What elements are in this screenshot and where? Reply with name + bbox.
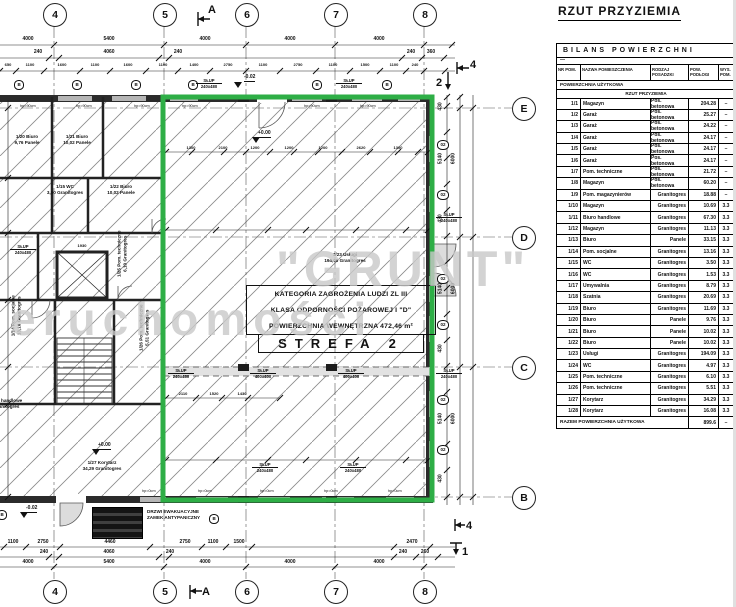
cell-room-name: Biuro <box>581 235 651 245</box>
room-label-line1: 1/26 Pom. techniczne <box>138 296 144 360</box>
total-area: 899.6 <box>689 417 719 428</box>
cell-room-number: 1/17 <box>557 281 581 291</box>
column-label: SŁUP 240x480 <box>252 462 278 474</box>
cell-height: – <box>719 178 733 188</box>
cell-area: 24.17 <box>689 133 719 143</box>
dimension-label: 5140 <box>439 144 444 174</box>
window-tag: 02 <box>437 320 449 330</box>
door-tag: B <box>209 514 219 524</box>
cell-area: 67.30 <box>689 212 719 222</box>
cell-room-name: Garaż <box>581 110 651 120</box>
room-label-line2: 5,51 Granitogres <box>144 296 150 360</box>
cell-area: 10.02 <box>689 326 719 336</box>
window-tag: 02 <box>437 445 449 455</box>
cell-room-name: Pom. techniczne <box>581 167 651 177</box>
dimension-label: 1930 <box>64 244 100 248</box>
cell-floor-type: Pos. betonowa <box>651 167 689 177</box>
cell-room-name: Biuro <box>581 304 651 314</box>
cell-area: 10.02 <box>689 338 719 348</box>
cell-height: 3.3 <box>719 258 733 268</box>
sill-height-label: hp=0cm <box>260 489 284 493</box>
dimension-label: 1100 <box>2 540 24 545</box>
grid-bubble: 6 <box>235 3 259 27</box>
dimension-label: 2750 <box>280 63 316 67</box>
cell-room-number: 1/14 <box>557 247 581 257</box>
dimension-label: 4000 <box>183 37 227 42</box>
cell-floor-type: Granitogres <box>651 292 689 302</box>
cell-area: 8.79 <box>689 281 719 291</box>
cell-area: 4.97 <box>689 360 719 370</box>
room-label: 1/25 Pom. techniczne 6,10 Granitogres <box>116 222 127 286</box>
cell-floor-type: Pos. betonowa <box>651 99 689 109</box>
cell-room-name: Garaż <box>581 144 651 154</box>
cell-area: 204.28 <box>689 99 719 109</box>
fire-note-line3: POWIERZCHNIA WEWNĘTRZNA 472,46 m² <box>247 323 435 330</box>
dimension-label: 6000 <box>452 274 457 304</box>
cell-height: 3.3 <box>719 360 733 370</box>
room-label-line2: 13,16 Granitogres <box>16 286 22 346</box>
cell-height: – <box>719 190 733 200</box>
dimension-label: 4460 <box>88 540 132 545</box>
door-tag: B <box>131 80 141 90</box>
grid-bubble: 4 <box>43 580 67 604</box>
dimension-label: 1100 <box>316 63 350 67</box>
cell-room-number: 1/5 <box>557 144 581 154</box>
cell-height: 3.3 <box>719 269 733 279</box>
cell-height: 3.3 <box>719 212 733 222</box>
column-label: SŁUP 400x400 <box>250 368 276 380</box>
column-label: SŁUP 240x480 <box>10 244 36 256</box>
dimension-label: 650 <box>0 63 16 67</box>
column-label-size: 240x480 <box>336 84 362 89</box>
evacuation-door-note-line2: ZAMEK ANTYPANICZNY <box>147 515 200 521</box>
dimension-label: 4000 <box>6 37 50 42</box>
cell-room-number: 1/26 <box>557 383 581 393</box>
col-header-height: WYS. POM. <box>719 65 733 80</box>
dimension-label: 1200 <box>276 146 302 150</box>
cell-room-number: 1/13 <box>557 235 581 245</box>
dimension-label: 2750 <box>210 63 246 67</box>
table-column-headers: NR POM. NAZWA POMIESZCZENIA RODZAJ POSAD… <box>557 65 735 81</box>
table-title: BILANS POWIERZCHNI <box>557 44 735 58</box>
column-label-size: 400x400 <box>250 374 276 379</box>
dimension-label: 1520 <box>200 392 228 396</box>
section-label: 4 <box>470 59 476 71</box>
cell-room-name: Pom. magazynierów <box>581 190 651 200</box>
cell-height: 3.3 <box>719 395 733 405</box>
cell-height: 3.3 <box>719 247 733 257</box>
column-label-size: 400x400 <box>338 374 364 379</box>
dimension-label: 1430 <box>228 392 256 396</box>
section-label: 4 <box>466 520 472 532</box>
cell-room-number: 1/7 <box>557 167 581 177</box>
dimension-label: 240 <box>28 50 48 55</box>
cell-floor-type: Granitogres <box>651 281 689 291</box>
fire-note-line1: KATEGORIA ZAGROŻENIA LUDZI ZL III <box>247 291 435 298</box>
dimension-label: 2750 <box>168 540 202 545</box>
table-row: 1/19 Biuro Granitogres 11.69 3.3 <box>557 304 735 315</box>
cell-area: 6.10 <box>689 372 719 382</box>
cell-floor-type: Granitogres <box>651 406 689 416</box>
dimension-label: 2100 <box>208 146 238 150</box>
section-label: A <box>208 4 216 16</box>
room-label-line2: 10,02 Panele <box>56 140 98 146</box>
cell-floor-type: Granitogres <box>651 269 689 279</box>
grid-bubble: 7 <box>324 3 348 27</box>
dimension-label: 240 <box>168 50 188 55</box>
column-label: SŁUP 240x480 <box>436 212 462 224</box>
dimension-label: 430 <box>439 92 444 122</box>
cell-floor-type: Granitogres <box>651 258 689 268</box>
door-mat <box>92 507 143 539</box>
grid-bubble: B <box>512 486 536 510</box>
cell-area: 24.17 <box>689 144 719 154</box>
cell-floor-type: Panele <box>651 338 689 348</box>
table-subsection-header: RZUT PRZYZIEMIA <box>557 90 735 99</box>
column-label: SŁUP 400x400 <box>338 368 364 380</box>
table-row: 1/6 Garaż Pos. betonowa 24.17 – <box>557 155 735 166</box>
grid-bubble: D <box>512 226 536 250</box>
cell-room-name: Magazyn <box>581 224 651 234</box>
cell-height: – <box>719 167 733 177</box>
room-label-line2: 67,30 Granitogres <box>0 404 30 410</box>
cell-height: – <box>719 99 733 109</box>
grid-bubble: E <box>512 97 536 121</box>
table-row: 1/11 Biuro handlowe Granitogres 67.30 3.… <box>557 212 735 223</box>
table-row: 1/2 Garaż Pos. betonowa 25.27 – <box>557 110 735 121</box>
dimension-label: 1400 <box>178 63 210 67</box>
cell-room-number: 1/2 <box>557 110 581 120</box>
cell-area: 25.27 <box>689 110 719 120</box>
column-label-size: 240x480 <box>10 250 36 255</box>
sill-height-label: hp=90cm <box>76 104 100 108</box>
total-label: RAZEM POWIERZCHNIA UŻYTKOWA <box>557 417 689 428</box>
room-label: 1/21 Biuro 10,02 Panele <box>56 134 98 145</box>
cell-room-name: WC <box>581 269 651 279</box>
column-label-size: 240x480 <box>196 84 222 89</box>
cell-height: 3.3 <box>719 315 733 325</box>
cell-height: 3.3 <box>719 281 733 291</box>
table-body: 1/1 Magazyn Pos. betonowa 204.28 – 1/2 G… <box>557 99 735 417</box>
column-label: SŁUP 240x480 <box>196 78 222 90</box>
cell-height: 3.3 <box>719 224 733 234</box>
cell-room-number: 1/11 <box>557 212 581 222</box>
dimension-label: 2110 <box>168 392 198 396</box>
table-row: 1/9 Pom. magazynierów Granitogres 18.88 … <box>557 190 735 201</box>
cell-room-number: 1/23 <box>557 349 581 359</box>
screenshot-root: "GRUNT" Nieruchomości 4567845678EDCB BBB… <box>0 0 736 607</box>
cell-floor-type: Granitogres <box>651 372 689 382</box>
dimension-label: 260 <box>416 550 434 555</box>
room-label: 1/23 Usługi 194,09 Granitogres <box>316 252 374 263</box>
cell-room-name: Korytarz <box>581 406 651 416</box>
sill-height-label: hp=90cm <box>134 104 158 108</box>
table-row: 1/21 Biuro Panele 10.02 3.3 <box>557 326 735 337</box>
dimension-label: 1100 <box>246 63 280 67</box>
fire-note-line2: KLASA ODPORNOŚCI POŻAROWEJ I "D" <box>247 307 435 314</box>
cell-room-number: 1/12 <box>557 224 581 234</box>
table-row: 1/22 Biuro Panele 10.02 3.3 <box>557 338 735 349</box>
column-label-size: 240x480 <box>340 468 366 473</box>
dimension-label: 5140 <box>439 274 444 304</box>
fire-zone-label: STREFA 2 <box>258 334 424 353</box>
cell-room-name: Biuro <box>581 326 651 336</box>
room-label: 1/11 Biuro handlowe 67,30 Granitogres <box>0 398 30 409</box>
table-row: 1/17 Umywalnia Granitogres 8.79 3.3 <box>557 281 735 292</box>
room-label-line2: 3,50 Granitogres <box>44 190 86 196</box>
table-row: 1/7 Pom. techniczne Pos. betonowa 21.72 … <box>557 167 735 178</box>
cell-height: 3.3 <box>719 201 733 211</box>
cell-room-name: Pom. socjalne <box>581 247 651 257</box>
cell-room-name: Garaż <box>581 121 651 131</box>
cell-floor-type: Pos. betonowa <box>651 133 689 143</box>
cell-room-name: Biuro <box>581 315 651 325</box>
table-row: 1/16 WC Granitogres 1.53 3.3 <box>557 269 735 280</box>
door-tag: B <box>382 80 392 90</box>
cell-floor-type: Panele <box>651 315 689 325</box>
col-header-nr: NR POM. <box>557 65 581 80</box>
table-row: 1/13 Biuro Panele 33.15 3.3 <box>557 235 735 246</box>
table-row: 1/10 Magazyn Granitogres 10.69 3.3 <box>557 201 735 212</box>
sill-height-label: hp=0cm <box>198 489 222 493</box>
cell-area: 11.13 <box>689 224 719 234</box>
table-row: 1/14 Pom. socjalne Granitogres 13.16 3.3 <box>557 247 735 258</box>
dimension-label: 1300 <box>178 146 204 150</box>
table-section-header: POWIERZCHNIA UŻYTKOWA <box>557 81 735 90</box>
dimension-label: 4000 <box>268 37 312 42</box>
window-tag: 02 <box>437 190 449 200</box>
table-row: 1/24 WC Granitogres 4.97 3.3 <box>557 360 735 371</box>
cell-room-number: 1/18 <box>557 292 581 302</box>
cell-room-number: 1/25 <box>557 372 581 382</box>
sill-height-label: hp=90cm <box>20 104 44 108</box>
level-marker: +0.00 <box>98 442 111 450</box>
cell-floor-type: Granitogres <box>651 395 689 405</box>
dimension-label: 1500 <box>226 540 252 545</box>
room-label-line2: 34,29 Granitogres <box>72 466 132 472</box>
dimension-label: 1100 <box>380 63 408 67</box>
column-label-size: 240x480 <box>168 374 194 379</box>
cell-area: 10.69 <box>689 201 719 211</box>
cell-area: 194.09 <box>689 349 719 359</box>
table-row: 1/26 Pom. techniczne Granitogres 5.51 3.… <box>557 383 735 394</box>
grid-bubble: C <box>512 356 536 380</box>
cell-floor-type: Granitogres <box>651 224 689 234</box>
col-header-area: POW. PODŁOGI <box>689 65 719 80</box>
dimension-label: 1100 <box>80 63 110 67</box>
cell-room-name: Magazyn <box>581 201 651 211</box>
grid-bubble: 4 <box>43 3 67 27</box>
dimension-label: 1200 <box>242 146 268 150</box>
dimension-label: 1100 <box>16 63 44 67</box>
table-row: 1/20 Biuro Panele 9.76 3.3 <box>557 315 735 326</box>
dimension-label: 1600 <box>110 63 146 67</box>
cell-height: 3.3 <box>719 292 733 302</box>
room-label-line2: 9,76 Panele <box>6 140 48 146</box>
section-label: 2 <box>436 77 442 89</box>
dimension-label: 6000 <box>452 144 457 174</box>
column-label-size: 240x480 <box>436 374 462 379</box>
dimension-label: 240 <box>394 550 412 555</box>
cell-area: 34.29 <box>689 395 719 405</box>
sill-height-label: hp=0cm <box>324 489 348 493</box>
dimension-label: 4000 <box>357 37 401 42</box>
table-row: 1/5 Garaż Pos. betonowa 24.17 – <box>557 144 735 155</box>
cell-room-name: Umywalnia <box>581 281 651 291</box>
expansion-joint <box>163 367 433 376</box>
cell-area: 1.53 <box>689 269 719 279</box>
cell-room-name: Usługi <box>581 349 651 359</box>
cell-room-number: 1/16 <box>557 269 581 279</box>
section-label: 1 <box>462 546 468 558</box>
cell-height: – <box>719 155 733 165</box>
sill-height-label: hp=0cm <box>142 489 166 493</box>
door-tag: B <box>312 80 322 90</box>
sill-height-label: hp=0cm <box>388 489 412 493</box>
cell-area: 13.16 <box>689 247 719 257</box>
dimension-label: 1200 <box>310 146 336 150</box>
cell-room-number: 1/20 <box>557 315 581 325</box>
column-label: SŁUP 240x480 <box>436 368 462 380</box>
table-row: 1/4 Garaż Pos. betonowa 24.17 – <box>557 133 735 144</box>
table-row: 1/8 Magazyn Pos. betonowa 60.20 – <box>557 178 735 189</box>
table-row: 1/23 Usługi Granitogres 194.09 3.3 <box>557 349 735 360</box>
cell-room-name: Garaż <box>581 155 651 165</box>
cell-floor-type: Granitogres <box>651 201 689 211</box>
cell-height: 3.3 <box>719 383 733 393</box>
cell-height: 3.3 <box>719 235 733 245</box>
room-label: 1/15 WC 3,50 Granitogres <box>44 184 86 195</box>
col-header-floor: RODZAJ POSADZKI <box>651 65 689 80</box>
cell-room-number: 1/27 <box>557 395 581 405</box>
cell-room-name: Garaż <box>581 133 651 143</box>
cell-height: 3.3 <box>719 326 733 336</box>
room-label-line2: 194,09 Granitogres <box>316 258 374 264</box>
room-label: 1/26 Pom. techniczne 5,51 Granitogres <box>138 296 149 360</box>
cell-floor-type: Granitogres <box>651 212 689 222</box>
table-row: 1/15 WC Granitogres 3.50 3.3 <box>557 258 735 269</box>
table-row: 1/27 Korytarz Granitogres 34.29 3.3 <box>557 395 735 406</box>
dimension-label: 430 <box>439 334 444 364</box>
cell-room-name: Pom. techniczne <box>581 383 651 393</box>
cell-height: – <box>719 110 733 120</box>
cell-area: 3.50 <box>689 258 719 268</box>
cell-room-number: 1/1 <box>557 99 581 109</box>
grid-bubble: 5 <box>153 580 177 604</box>
total-height: – <box>719 417 733 428</box>
grid-bubble: 8 <box>413 580 437 604</box>
cell-room-number: 1/10 <box>557 201 581 211</box>
fire-safety-note: KATEGORIA ZAGROŻENIA LUDZI ZL III KLASA … <box>246 285 436 335</box>
cell-floor-type: Pos. betonowa <box>651 121 689 131</box>
cell-room-name: Biuro handlowe <box>581 212 651 222</box>
room-label: 1/22 Biuro 10,02 Panele <box>98 184 144 195</box>
cell-room-number: 1/15 <box>557 258 581 268</box>
column-label-size: 240x480 <box>252 468 278 473</box>
cell-room-number: 1/22 <box>557 338 581 348</box>
dimension-label: 2750 <box>26 540 60 545</box>
cell-floor-type: Pos. betonowa <box>651 155 689 165</box>
cell-height: 3.3 <box>719 338 733 348</box>
cell-floor-type: Panele <box>651 326 689 336</box>
cell-room-name: WC <box>581 360 651 370</box>
cell-room-number: 1/6 <box>557 155 581 165</box>
dimension-label: 240 <box>34 550 54 555</box>
cell-area: 18.88 <box>689 190 719 200</box>
dimension-label: 1300 <box>384 146 412 150</box>
cell-area: 20.69 <box>689 292 719 302</box>
dimension-label: 5400 <box>87 560 131 565</box>
cell-room-name: Magazyn <box>581 99 651 109</box>
dimension-label: 240 <box>160 550 180 555</box>
table-total-row: RAZEM POWIERZCHNIA UŻYTKOWA 899.6 – <box>557 416 735 428</box>
dimension-label: 1100 <box>200 540 226 545</box>
dimension-label: 4060 <box>87 550 131 555</box>
cell-room-number: 1/3 <box>557 121 581 131</box>
dimension-label: 6000 <box>452 404 457 434</box>
room-label: 1/14 Pom. socjalne 13,16 Granitogres <box>10 286 21 346</box>
room-label-line2: 6,10 Granitogres <box>122 222 128 286</box>
cell-floor-type: Pos. betonowa <box>651 178 689 188</box>
dimension-label: 4000 <box>268 560 312 565</box>
cell-room-name: Szatnia <box>581 292 651 302</box>
sill-height-label: hp=90cm <box>182 104 206 108</box>
evacuation-door-note: DRZWI EWAKUACYJNE ZAMEK ANTYPANICZNY <box>147 509 200 522</box>
dimension-label: 4000 <box>357 560 401 565</box>
dimension-label: 5140 <box>439 404 444 434</box>
door-tag: B <box>14 80 24 90</box>
room-label-line2: 10,02 Panele <box>98 190 144 196</box>
cell-floor-type: Granitogres <box>651 360 689 370</box>
grid-bubble: 5 <box>153 3 177 27</box>
dimension-label: 240 <box>406 63 424 67</box>
cell-floor-type: Panele <box>651 235 689 245</box>
door-tag: B <box>72 80 82 90</box>
column-label: SŁUP 240x480 <box>168 368 194 380</box>
cell-height: 3.3 <box>719 372 733 382</box>
col-header-name: NAZWA POMIESZCZENIA <box>581 65 651 80</box>
cell-room-name: WC <box>581 258 651 268</box>
cell-height: 3.3 <box>719 406 733 416</box>
table-row: 1/25 Pom. techniczne Granitogres 6.10 3.… <box>557 372 735 383</box>
grid-bubble: 8 <box>413 3 437 27</box>
dimension-label: 1100 <box>146 63 180 67</box>
cell-area: 60.20 <box>689 178 719 188</box>
dimension-label: 1600 <box>44 63 80 67</box>
cell-area: 11.69 <box>689 304 719 314</box>
cell-area: 33.15 <box>689 235 719 245</box>
cell-height: 3.3 <box>719 349 733 359</box>
grid-bubble: 7 <box>324 580 348 604</box>
sill-height-label: hp=90cm <box>360 104 384 108</box>
cell-floor-type: Granitogres <box>651 247 689 257</box>
page-title: RZUT PRZYZIEMIA <box>558 4 681 21</box>
cell-room-number: 1/19 <box>557 304 581 314</box>
column-label-size: 240x480 <box>436 218 462 223</box>
room-label: 1/27 Korytarz 34,29 Granitogres <box>72 460 132 471</box>
cell-room-number: 1/4 <box>557 133 581 143</box>
cell-area: 24.17 <box>689 155 719 165</box>
dimension-label: 4060 <box>87 50 131 55</box>
dimension-label: 2470 <box>394 540 430 545</box>
cell-height: – <box>719 133 733 143</box>
level-marker: +0.00 <box>258 130 271 138</box>
room-label: 1/20 Biuro 9,76 Panele <box>6 134 48 145</box>
cell-room-number: 1/9 <box>557 190 581 200</box>
area-balance-table: BILANS POWIERZCHNI — NR POM. NAZWA POMIE… <box>556 43 736 429</box>
cell-room-number: 1/21 <box>557 326 581 336</box>
dimension-label: 360 <box>422 50 440 55</box>
